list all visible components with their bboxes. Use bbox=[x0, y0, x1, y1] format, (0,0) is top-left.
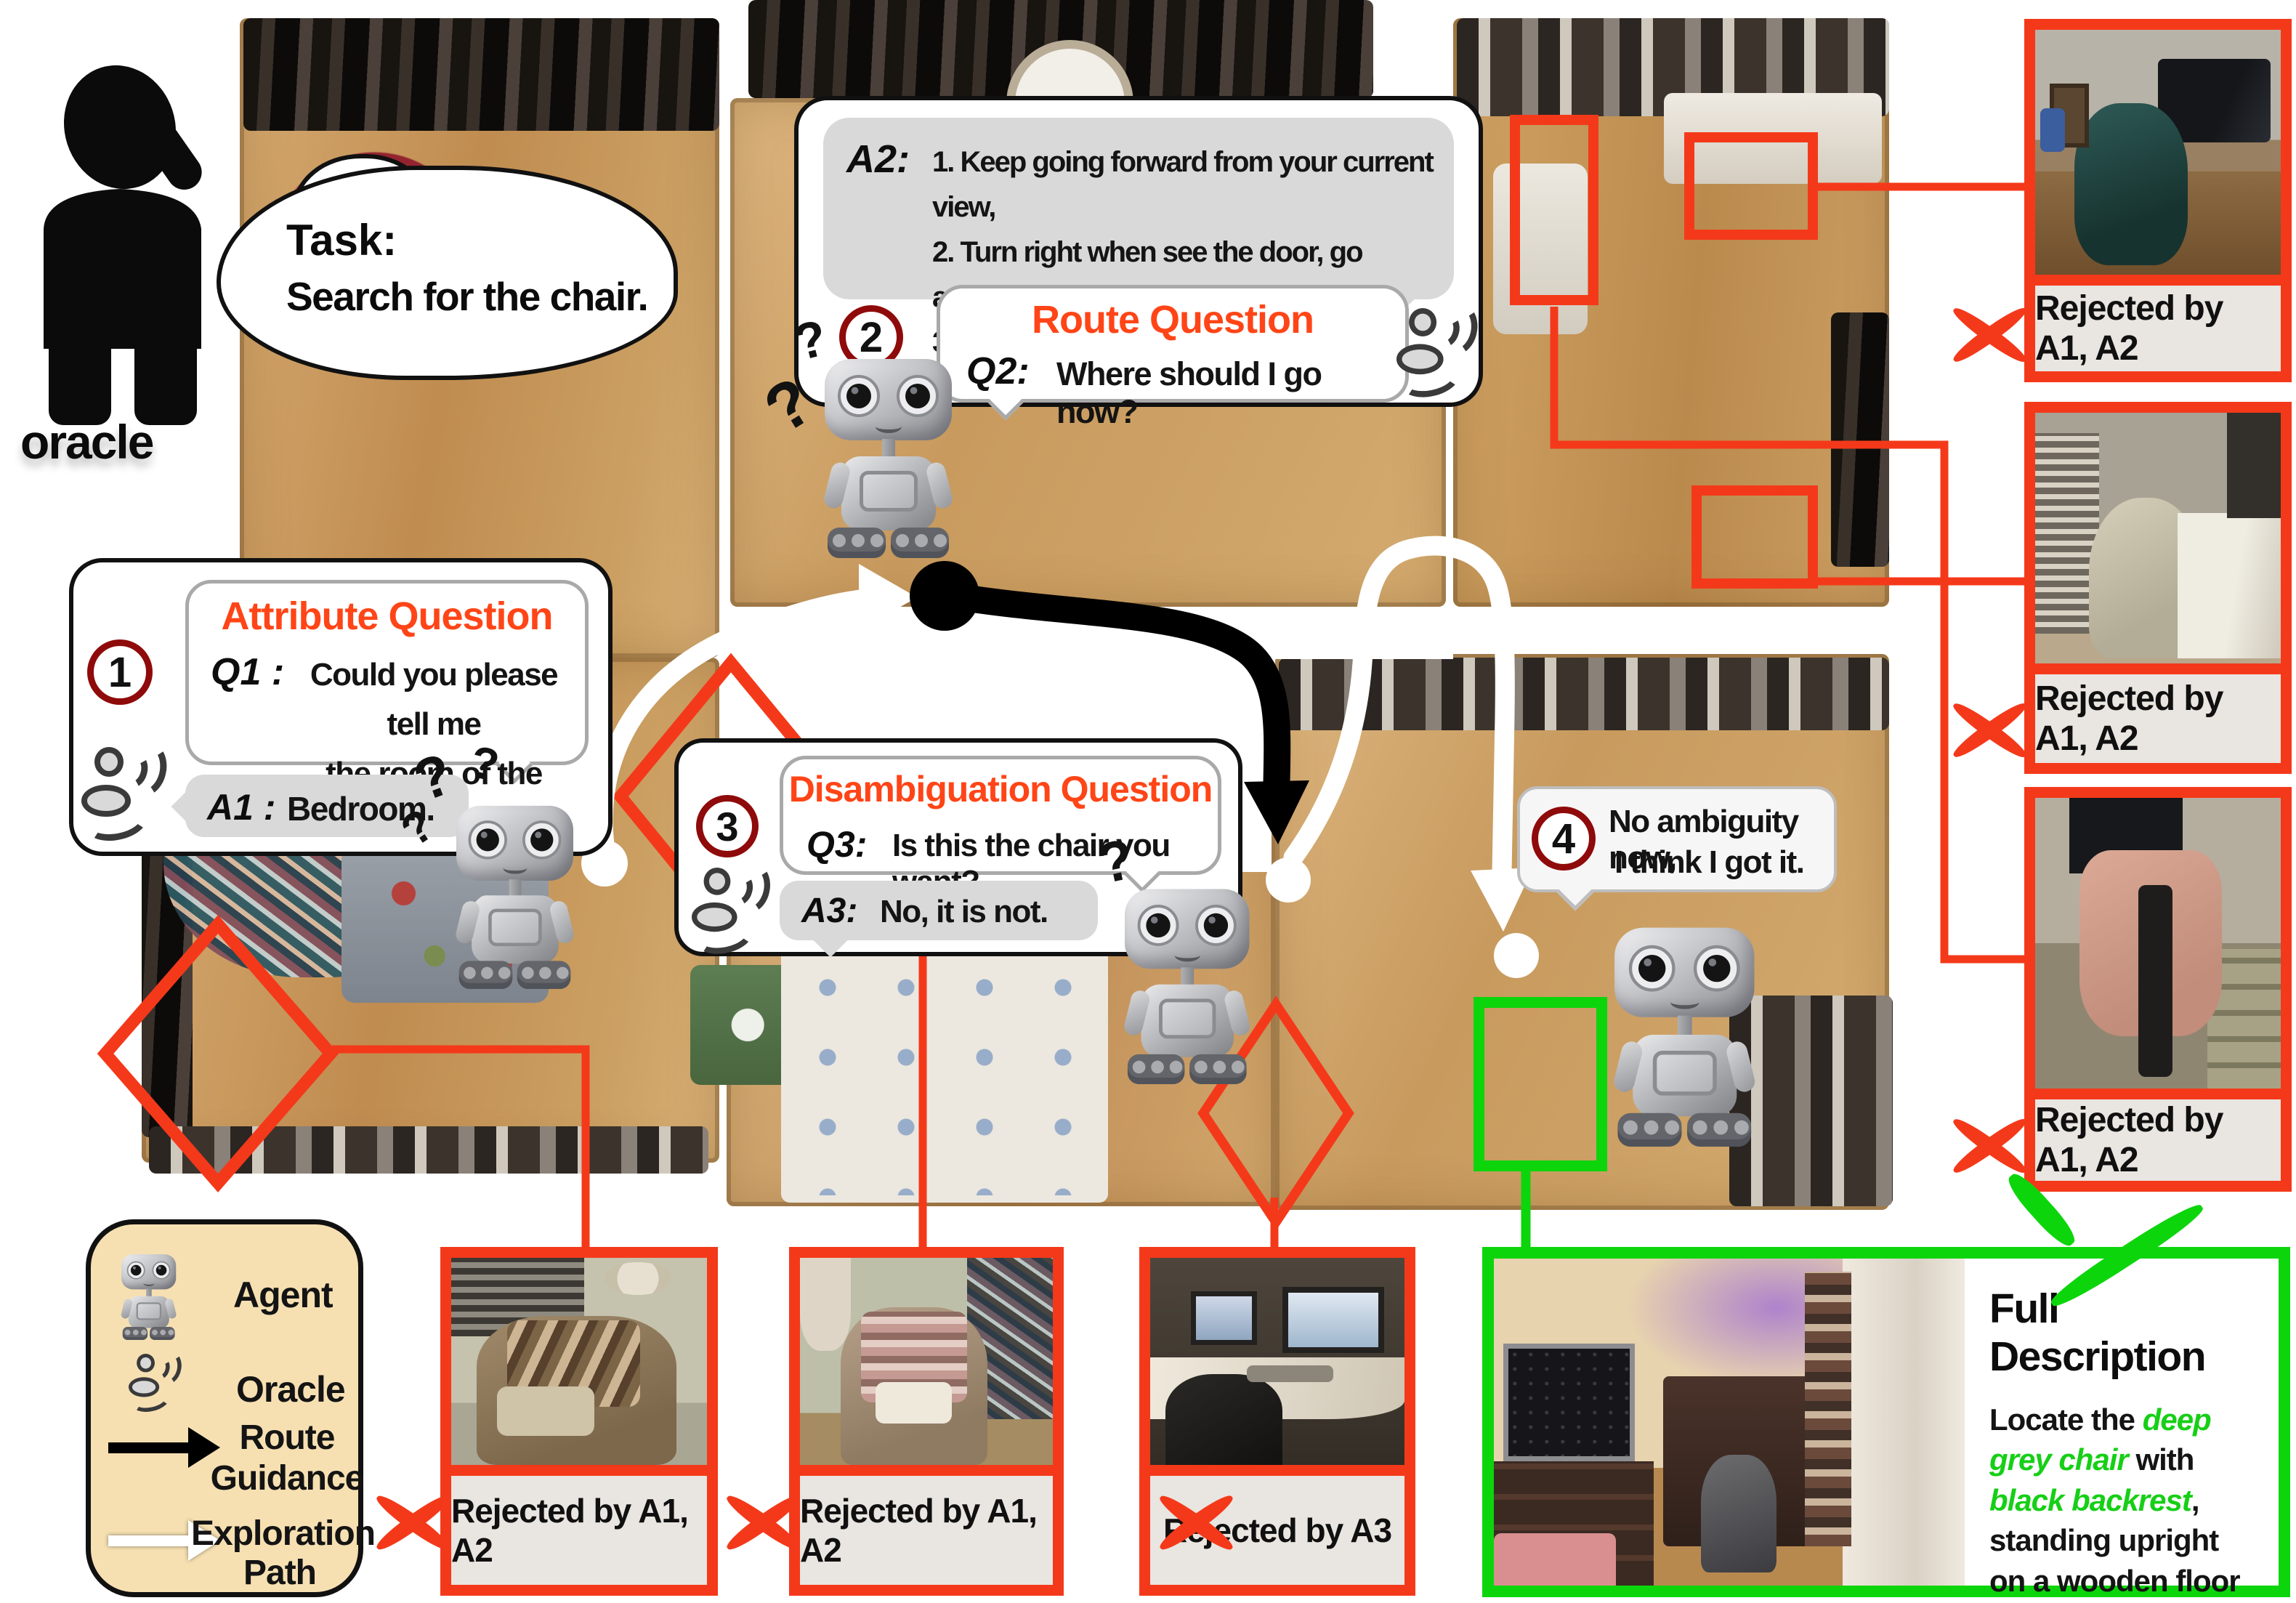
legend-route-label-1: Route bbox=[214, 1418, 360, 1458]
rejected-x-bottom-2 bbox=[725, 1482, 801, 1562]
connector-diamond1-to-bottom-panel1 bbox=[326, 1049, 586, 1247]
step3-answer-bubble: A3: No, it is not. bbox=[780, 881, 1098, 940]
step3-answer-text: No, it is not. bbox=[880, 894, 1048, 930]
rejected-panel-right-3: Rejected by A1, A2 bbox=[2024, 787, 2292, 1192]
full-description-text-block: Full Description Locate the deep grey ch… bbox=[1965, 1259, 2279, 1586]
figure-canvas: oracle Task: Search for the chair. A2: 1… bbox=[0, 0, 2296, 1603]
step3-question-bubble: Disambiguation Question Q3: Is this the … bbox=[780, 756, 1221, 875]
rejected-caption-bottom-1: Rejected by A1, A2 bbox=[451, 1465, 707, 1585]
step1-question-bubble: Attribute Question Q1 : Could you please… bbox=[185, 580, 589, 765]
curtain-right-shape bbox=[1843, 1259, 1965, 1586]
step3-oracle-icon bbox=[692, 868, 765, 947]
plate-decor-shape bbox=[605, 1262, 671, 1296]
desc-seg: Locate the bbox=[1989, 1402, 2143, 1437]
exploration-path-2 bbox=[1293, 546, 1505, 872]
blue-jug-shape bbox=[2040, 108, 2065, 153]
step2-answer-label: A2: bbox=[846, 137, 910, 182]
desc-seg-highlight: black backrest bbox=[1989, 1483, 2191, 1517]
grey-chair-shape bbox=[1701, 1455, 1776, 1572]
waypoint-dot-white-2 bbox=[1266, 857, 1311, 903]
curtain-shape bbox=[800, 1258, 851, 1351]
rejected-image-right-3 bbox=[2035, 798, 2281, 1089]
papers-desk-shape bbox=[2178, 513, 2281, 658]
step1-question-line1: Could you please tell me bbox=[292, 650, 575, 749]
step1-question-label: Q1 : bbox=[211, 650, 284, 694]
step1-category: Attribute Question bbox=[189, 594, 585, 639]
black-strap-shape bbox=[2138, 885, 2172, 1077]
legend-oracle-label: Oracle bbox=[236, 1368, 345, 1410]
pink-bed-shape bbox=[1494, 1533, 1616, 1586]
agent-robot-step1 bbox=[456, 788, 573, 989]
monitor-large-shape bbox=[1282, 1287, 1384, 1353]
step1-answer-label: A1 : bbox=[207, 786, 275, 828]
rejected-caption-right-1: Rejected by A1, A2 bbox=[2035, 275, 2281, 371]
keyboard-shape bbox=[1247, 1365, 1333, 1382]
waypoint-dot-black bbox=[910, 561, 979, 631]
legend-agent-label: Agent bbox=[233, 1274, 333, 1316]
teal-chair-shape bbox=[2074, 103, 2187, 265]
black-chair-shape bbox=[1165, 1374, 1282, 1465]
rejected-panel-bottom-2: Rejected by A1, A2 bbox=[789, 1247, 1064, 1596]
step3-category: Disambiguation Question bbox=[783, 768, 1218, 810]
full-description-panel: Full Description Locate the deep grey ch… bbox=[1482, 1247, 2290, 1597]
agent-robot-step2 bbox=[825, 340, 952, 558]
agent-robot-step3 bbox=[1125, 871, 1250, 1084]
desc-seg: with bbox=[2128, 1442, 2194, 1477]
legend-agent-robot-icon bbox=[121, 1246, 176, 1340]
wall-collage-shape bbox=[1805, 1272, 1852, 1546]
monitor-small-shape bbox=[1191, 1291, 1257, 1345]
rejected-image-bottom-2 bbox=[800, 1258, 1053, 1465]
rejected-panel-right-1: Rejected by A1, A2 bbox=[2024, 19, 2292, 382]
legend-route-label-2: Guidance bbox=[207, 1458, 367, 1498]
white-pillow-shape bbox=[876, 1382, 951, 1424]
task-cloud: Task: Search for the chair. bbox=[217, 166, 678, 380]
rejected-caption-right-2: Rejected by A1, A2 bbox=[2035, 663, 2281, 763]
legend-exploration-path-arrow-icon bbox=[108, 1535, 190, 1546]
oracle-label: oracle bbox=[20, 414, 153, 469]
step2-answer-line1: 1. Keep going forward from your current … bbox=[932, 140, 1441, 230]
agent-robot-step4 bbox=[1614, 907, 1755, 1147]
step3-number-badge: 3 bbox=[696, 795, 759, 857]
step3-question-label: Q3: bbox=[807, 823, 867, 865]
pillow-shape bbox=[497, 1386, 594, 1436]
step2-question-text: Where should I go now? bbox=[1056, 355, 1405, 431]
step2-answer-bubble: A2: 1. Keep going forward from your curr… bbox=[823, 118, 1454, 299]
legend-oracle-icon bbox=[129, 1354, 178, 1407]
step4-number-badge: 4 bbox=[1532, 807, 1596, 871]
rejected-x-bottom-1 bbox=[375, 1482, 450, 1562]
step1-oracle-icon bbox=[81, 747, 161, 833]
legend-box: Agent Oracle Route Guidance Exploration … bbox=[86, 1219, 363, 1597]
legend-route-guidance-arrow-icon bbox=[108, 1442, 190, 1453]
step1-number-badge: 1 bbox=[87, 639, 153, 705]
tv-screen-shape bbox=[1503, 1344, 1635, 1461]
step2-question-bubble: Route Question Q2: Where should I go now… bbox=[937, 285, 1409, 403]
step3-answer-label: A3: bbox=[801, 891, 857, 931]
rejected-image-right-1 bbox=[2035, 30, 2281, 275]
rejected-caption-bottom-2: Rejected by A1, A2 bbox=[800, 1465, 1053, 1585]
step2-category: Route Question bbox=[940, 297, 1405, 342]
rejected-panel-right-2: Rejected by A1, A2 bbox=[2024, 402, 2292, 774]
rejected-image-bottom-3 bbox=[1150, 1258, 1404, 1465]
full-description-title: Full Description bbox=[1989, 1285, 2260, 1381]
candidate-diamond-1 bbox=[105, 924, 331, 1183]
step2-oracle-icon bbox=[1396, 308, 1473, 389]
rejected-image-bottom-1 bbox=[451, 1258, 707, 1465]
step2-question-label: Q2: bbox=[966, 350, 1030, 393]
rejected-image-right-2 bbox=[2035, 413, 2281, 663]
waypoint-dot-white-3 bbox=[1494, 933, 1539, 978]
connector-junction-to-right-panel3 bbox=[1944, 581, 2026, 959]
full-description-image bbox=[1494, 1259, 1965, 1586]
legend-exploration-label-1: Exploration bbox=[191, 1514, 365, 1554]
dark-corner-shape bbox=[2227, 413, 2281, 518]
rejected-x-right-2 bbox=[1952, 692, 2027, 767]
full-description-body: Locate the deep grey chair with black ba… bbox=[1989, 1400, 2260, 1603]
exploration-arrowhead-1 bbox=[859, 564, 917, 631]
task-text: Search for the chair. bbox=[286, 273, 647, 320]
accepted-checkmark bbox=[1994, 1145, 2212, 1235]
rejected-x-right-1 bbox=[1952, 296, 2027, 372]
step4-bubble: 4 No ambiguity now, I think I got it. bbox=[1517, 786, 1837, 892]
rejected-x-bottom-3 bbox=[1158, 1482, 1234, 1562]
step4-line2: I think I got it. bbox=[1614, 844, 1803, 881]
rejected-panel-bottom-1: Rejected by A1, A2 bbox=[440, 1247, 718, 1596]
legend-exploration-label-2: Path bbox=[207, 1553, 352, 1593]
task-title: Task: bbox=[286, 215, 397, 265]
oracle-silhouette bbox=[11, 44, 251, 429]
